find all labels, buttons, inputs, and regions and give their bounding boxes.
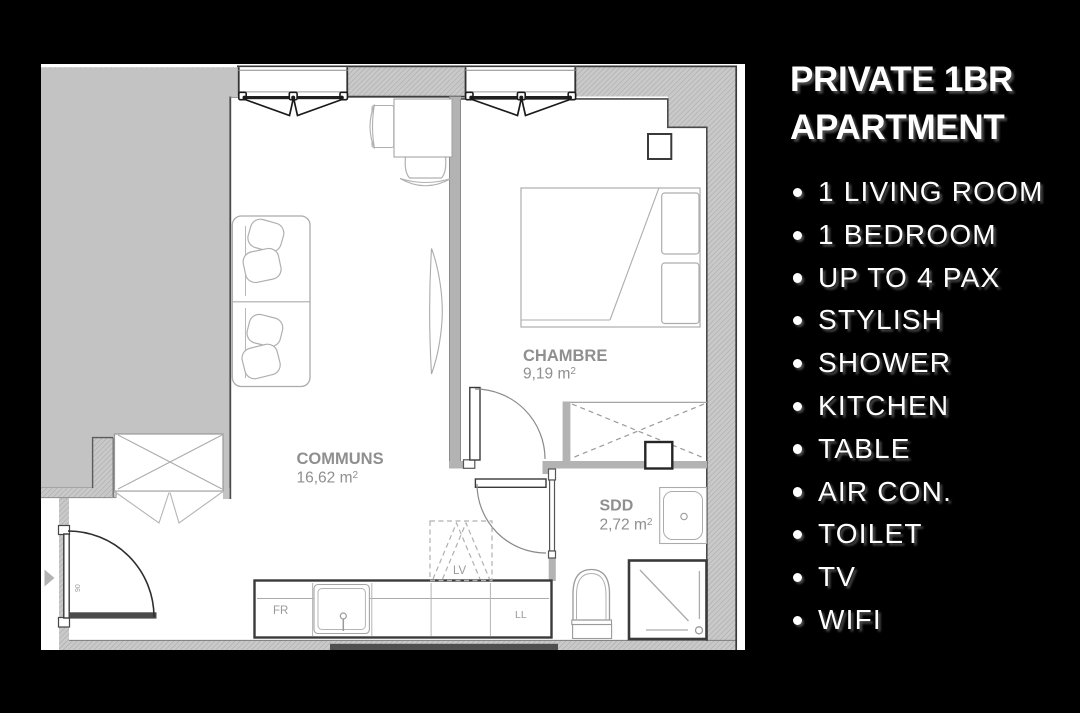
svg-text:CHAMBRE: CHAMBRE [523,347,607,365]
svg-text:SDD: SDD [600,498,634,515]
svg-text:9,19 m2: 9,19 m2 [523,366,576,383]
svg-text:LL: LL [515,609,527,621]
svg-text:90: 90 [75,584,82,592]
svg-text:LV: LV [453,565,467,577]
svg-text:16,62 m2: 16,62 m2 [297,470,359,487]
svg-text:COMMUNS: COMMUNS [297,450,384,468]
svg-text:2,72 m2: 2,72 m2 [600,517,653,534]
svg-text:FR: FR [273,605,288,617]
